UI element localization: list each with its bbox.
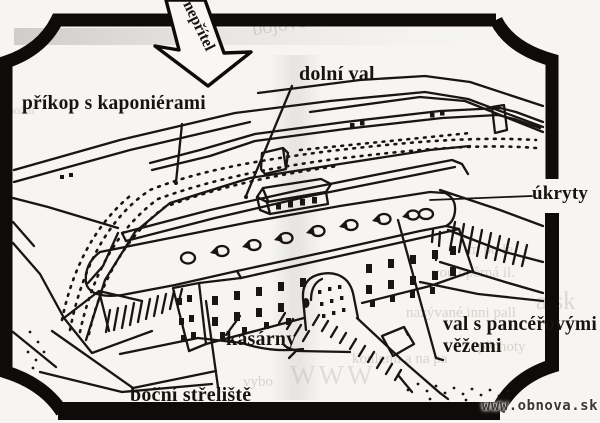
watermark-url: www.obnova.sk [450,398,598,414]
label-side-firing-range: boční střeliště [130,384,251,407]
label-armored-rampart-line1: val s pancéřovými [443,314,597,336]
label-armored-rampart: val s pancéřovými věžemi [443,314,597,358]
main-rampart-plateau [86,192,459,296]
label-barracks: kasárny [226,328,296,351]
counterscarp-wall [60,105,543,179]
entrance-structure [303,273,359,330]
scanned-fort-diagram: bojové požní m po le vou opěrná il. nazý… [0,0,600,423]
label-armored-rampart-line2: věžemi [443,336,597,358]
label-shelters: úkryty [532,183,588,205]
label-moat-caponiers: příkop s kaponiérami [22,93,206,115]
enemy-arrow-icon: nepřítel [155,0,251,86]
label-lower-rampart: dolní val [299,63,375,86]
